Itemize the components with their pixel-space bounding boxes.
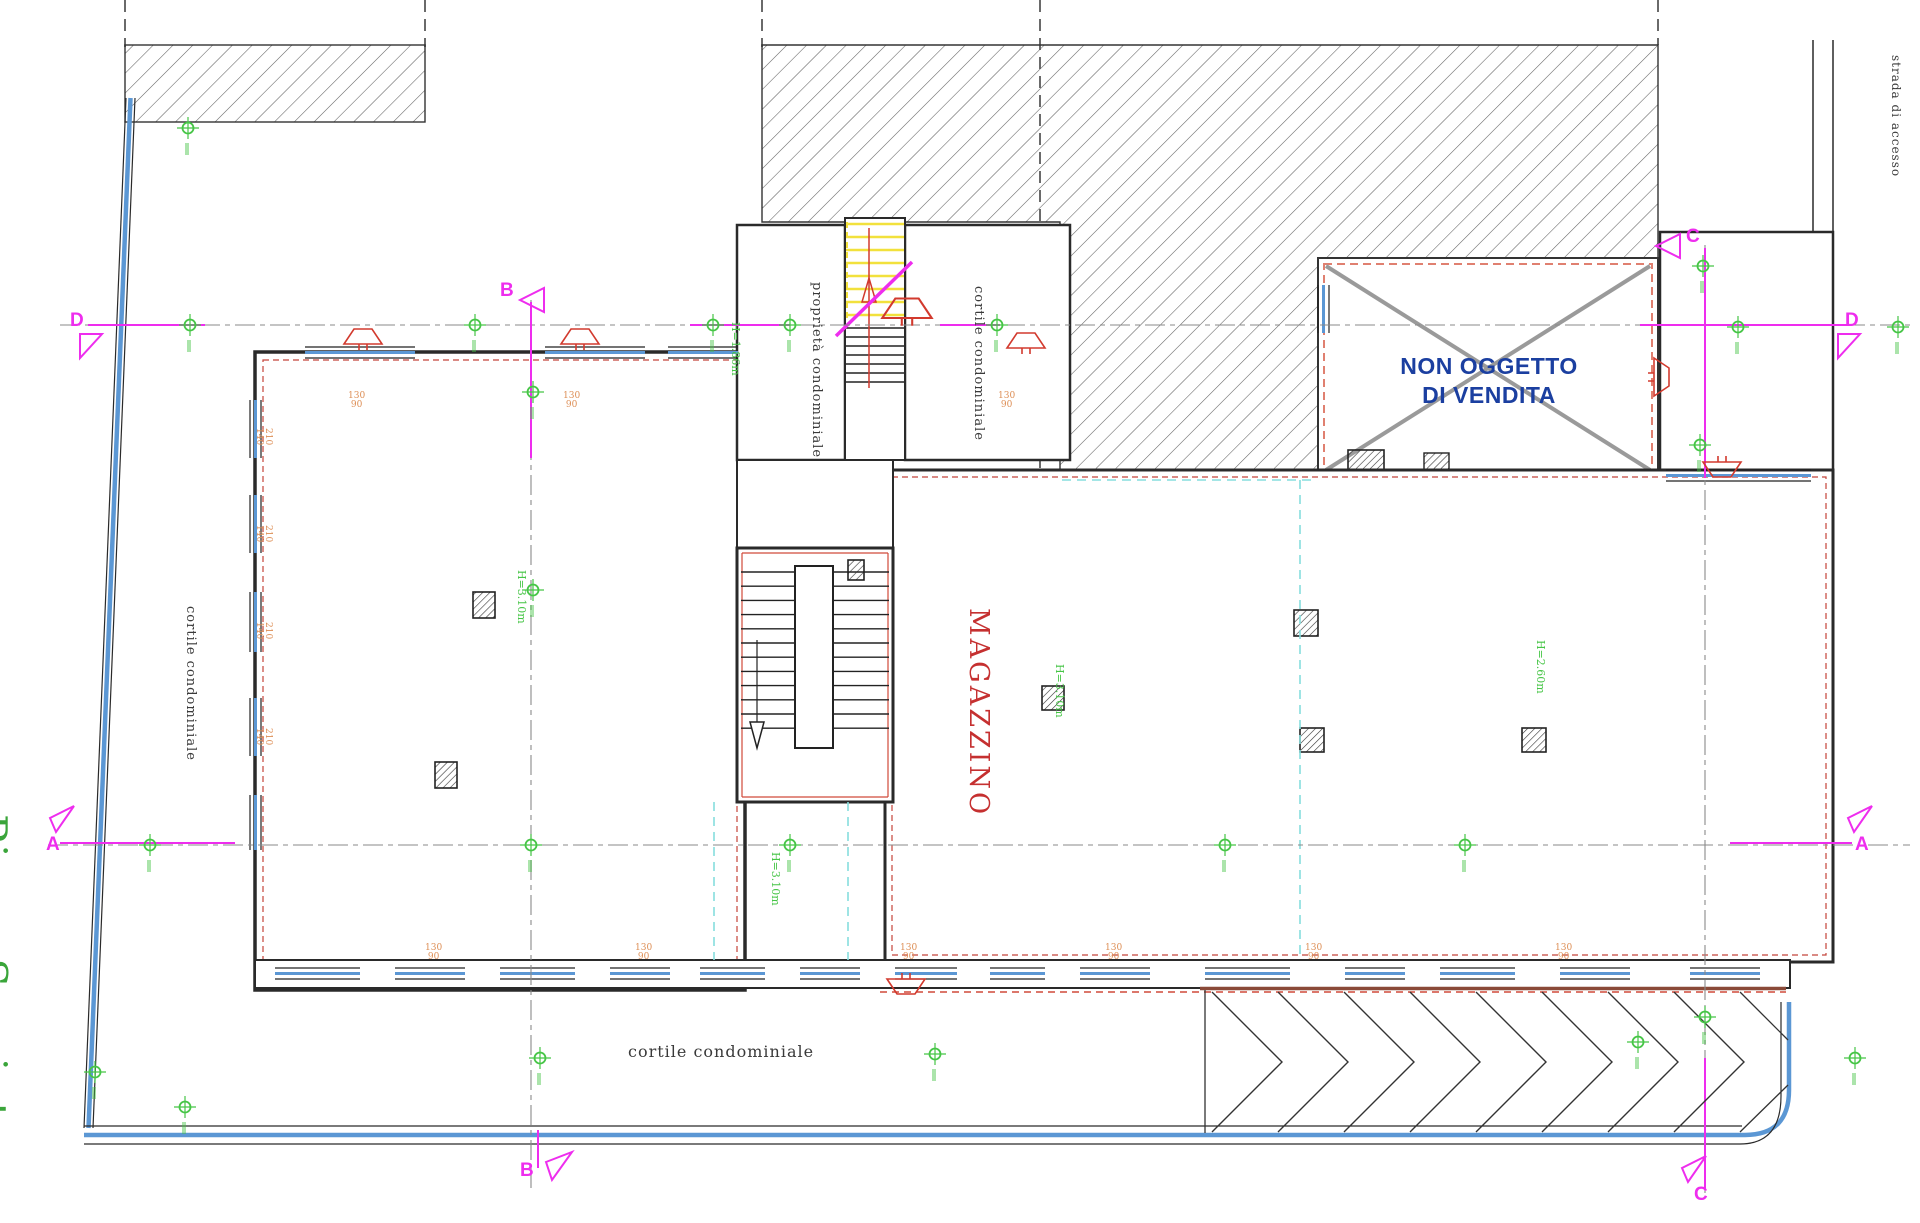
window-dimension-label: 130 90	[1305, 944, 1322, 961]
hatched-building-top-left	[125, 45, 425, 122]
survey-marker	[702, 314, 724, 352]
survey-marker	[924, 1043, 946, 1081]
ramp-chevron	[1278, 992, 1348, 1132]
section-letter-c-top: C	[1686, 226, 1700, 248]
plan-linework	[0, 0, 1920, 1223]
window-dimension-label: 130 90	[998, 392, 1015, 409]
survey-marker	[174, 1096, 196, 1134]
survey-marker	[1627, 1031, 1649, 1069]
magazzino-label: MAGAZZINO	[963, 608, 994, 817]
upper-rooms	[737, 218, 1070, 460]
window-dimension-label: 130 90	[348, 392, 365, 409]
ramp-chevron	[1344, 992, 1414, 1132]
window-dimension-label: 130 90	[635, 944, 652, 961]
height-label: H=3.10m	[769, 852, 782, 906]
survey-marker	[1844, 1047, 1866, 1085]
section-letter-d-right: D	[1845, 310, 1859, 332]
cortile-condominiale-left-label: cortile condominiale	[183, 606, 198, 761]
survey-marker	[779, 834, 801, 872]
pillar	[848, 560, 864, 580]
section-letter-b-bottom: B	[520, 1160, 534, 1182]
proprieta-condominiale-label: proprietà condominiale	[809, 282, 824, 458]
section-letter-c-bottom: C	[1694, 1184, 1708, 1206]
survey-marker	[529, 1047, 551, 1085]
window-dimension-label: 210 140	[255, 428, 272, 445]
floor-plan-canvas: NON OGGETTO DI VENDITA MAGAZZINO proprie…	[0, 0, 1920, 1223]
survey-marker	[179, 314, 201, 352]
survey-marker	[139, 834, 161, 872]
ramp-chevron	[1476, 992, 1546, 1132]
height-label: H=1.86m	[729, 322, 742, 376]
pillar	[1522, 728, 1546, 752]
window-dimension-label: 130 90	[900, 944, 917, 961]
non-oggetto-line1: NON OGGETTO	[1360, 352, 1618, 381]
window-dimension-label: 130 90	[1555, 944, 1572, 961]
pillar	[473, 592, 495, 618]
strada-di-accesso-label: strada di accesso	[1889, 55, 1903, 177]
height-label: H=3.10m	[515, 570, 528, 624]
magazzino-hall	[885, 470, 1833, 962]
section-letter-a-right: A	[1855, 834, 1869, 856]
non-oggetto-line2: DI VENDITA	[1360, 381, 1618, 410]
survey-marker	[1887, 316, 1909, 354]
height-label: H=3.10m	[1053, 664, 1066, 718]
ramp-chevron	[1608, 992, 1678, 1132]
section-letter-b-top: B	[500, 280, 514, 302]
pillar	[1294, 610, 1318, 636]
survey-marker	[464, 314, 486, 352]
window-dimension-label: 210 140	[255, 622, 272, 639]
height-label: H=2.60m	[1534, 640, 1547, 694]
window-dimension-label: 210 140	[255, 525, 272, 542]
ramp-chevron	[1212, 992, 1282, 1132]
window-dimension-label: 130 90	[425, 944, 442, 961]
survey-marker	[84, 1061, 106, 1099]
right-room	[1660, 232, 1833, 478]
bottom-wall	[255, 960, 1790, 992]
pillar	[435, 762, 457, 788]
pillar	[1300, 728, 1324, 752]
section-letter-a-left: A	[46, 834, 60, 856]
cortile-condominiale-bottom-label: cortile condominiale	[628, 1042, 814, 1061]
survey-marker	[1694, 1006, 1716, 1044]
window-dimension-label: 130 90	[563, 392, 580, 409]
left-block	[255, 352, 745, 990]
ramp-chevrons	[1212, 992, 1744, 1132]
ramp-chevron	[1542, 992, 1612, 1132]
plan-title: Piano Seminterrato	[0, 814, 16, 1223]
window-dimension-label: 210 140	[255, 728, 272, 745]
non-oggetto-di-vendita-label: NON OGGETTO DI VENDITA	[1360, 352, 1618, 410]
cortile-condominiale-top-label: cortile condominiale	[971, 286, 986, 441]
window-dimension-label: 130 90	[1105, 944, 1122, 961]
ramp-chevron	[1410, 992, 1480, 1132]
section-letter-d-left: D	[70, 310, 84, 332]
